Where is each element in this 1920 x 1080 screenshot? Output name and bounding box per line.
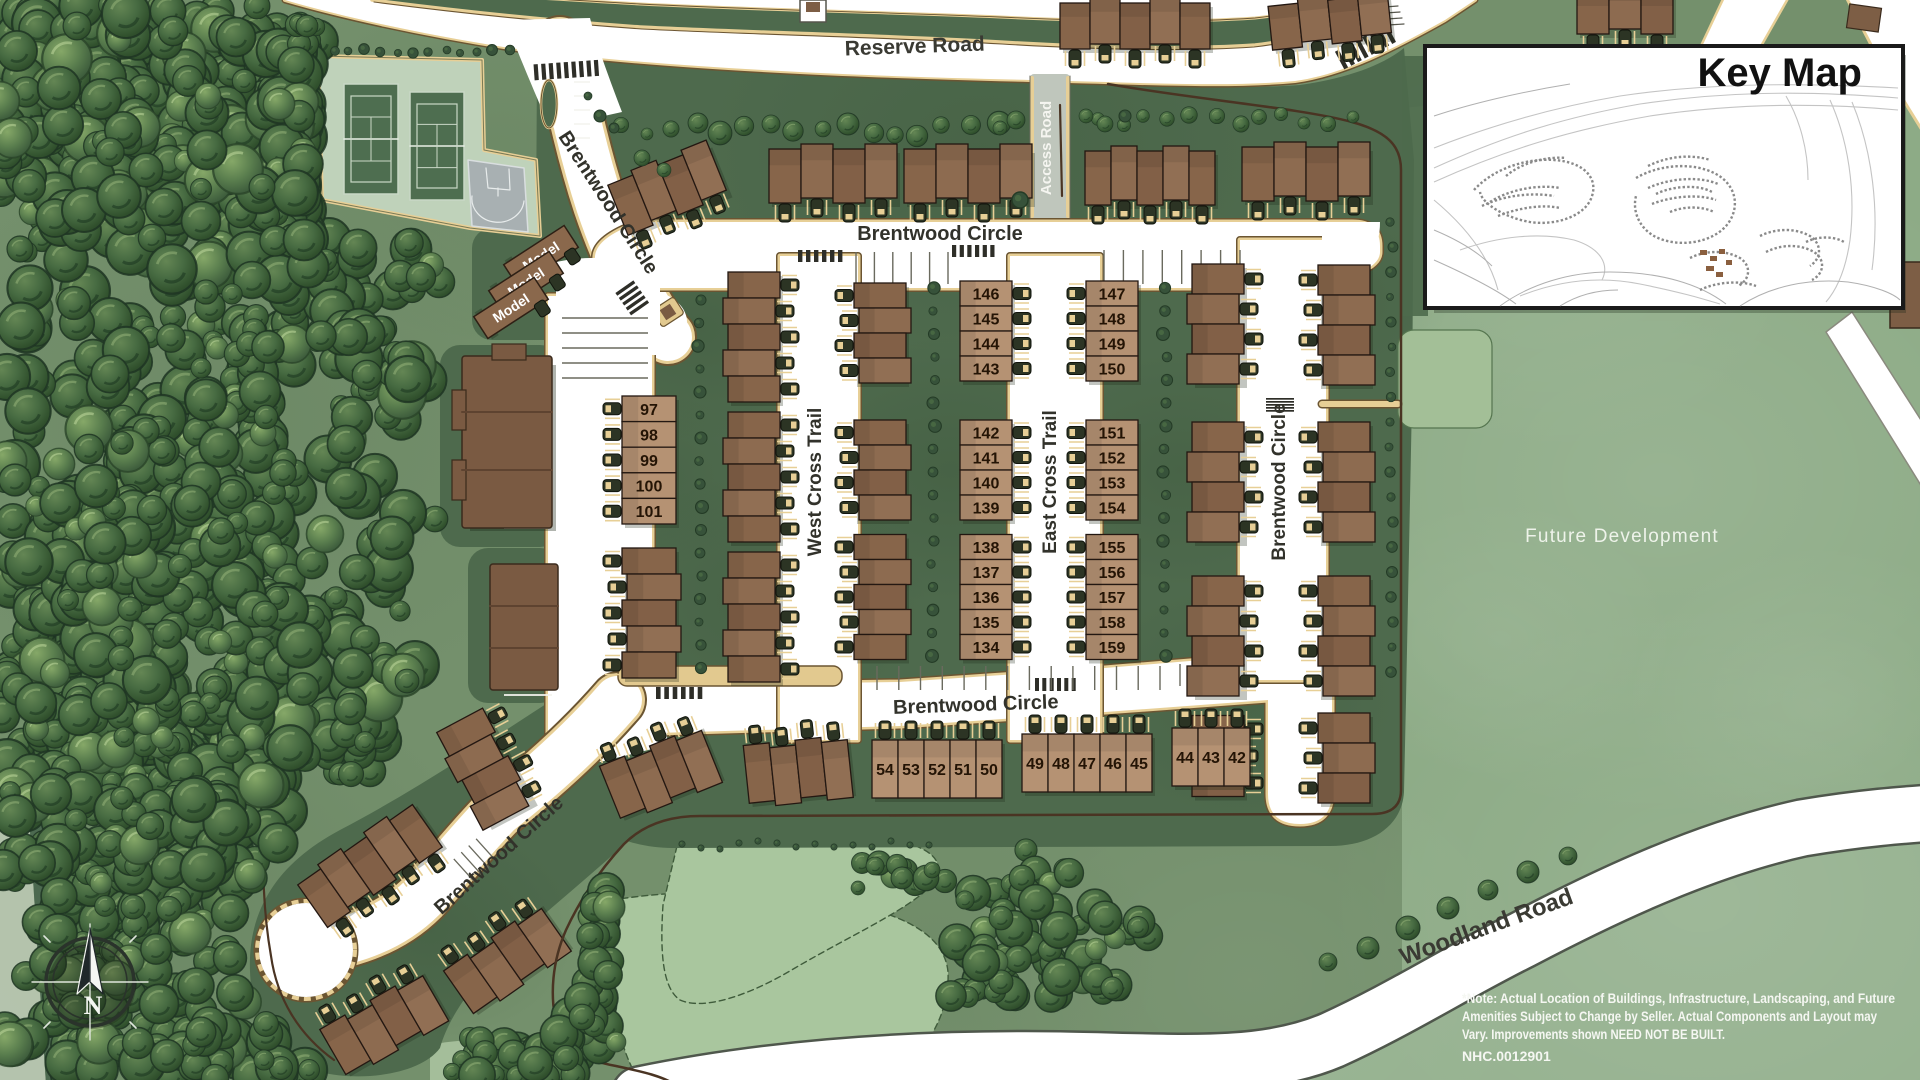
svg-text:N: N — [84, 991, 103, 1020]
svg-text:Brentwood Circle: Brentwood Circle — [857, 223, 1023, 245]
svg-text:140: 140 — [973, 476, 1000, 493]
svg-text:145: 145 — [973, 312, 1000, 329]
svg-text:*Note: Actual Location of Buil: *Note: Actual Location of Buildings, Inf… — [1462, 990, 1895, 1006]
svg-text:West Cross Trail: West Cross Trail — [805, 408, 826, 557]
svg-text:136: 136 — [973, 590, 1000, 607]
svg-text:137: 137 — [973, 565, 1000, 582]
svg-text:46: 46 — [1104, 756, 1122, 773]
svg-text:47: 47 — [1078, 756, 1096, 773]
svg-text:Future Development: Future Development — [1525, 526, 1719, 547]
svg-text:Access Road: Access Road — [1038, 101, 1055, 195]
svg-text:101: 101 — [636, 504, 663, 521]
svg-text:153: 153 — [1099, 476, 1126, 493]
svg-text:144: 144 — [973, 337, 1000, 354]
svg-text:156: 156 — [1099, 565, 1126, 582]
svg-text:143: 143 — [973, 362, 1000, 379]
svg-text:149: 149 — [1099, 337, 1126, 354]
svg-text:51: 51 — [954, 762, 972, 779]
svg-text:Vary. Improvements shown NEED: Vary. Improvements shown NEED NOT BE BUI… — [1462, 1026, 1725, 1042]
svg-text:44: 44 — [1176, 750, 1194, 767]
svg-text:48: 48 — [1052, 756, 1070, 773]
svg-text:148: 148 — [1099, 312, 1126, 329]
svg-text:50: 50 — [980, 762, 998, 779]
svg-text:146: 146 — [973, 287, 1000, 304]
svg-text:52: 52 — [928, 762, 946, 779]
svg-text:134: 134 — [973, 640, 1000, 657]
svg-text:42: 42 — [1228, 750, 1246, 767]
svg-text:157: 157 — [1099, 590, 1126, 607]
svg-text:151: 151 — [1099, 426, 1126, 443]
svg-text:NHC.0012901: NHC.0012901 — [1462, 1048, 1551, 1064]
svg-text:135: 135 — [973, 615, 1000, 632]
svg-text:158: 158 — [1099, 615, 1126, 632]
svg-text:49: 49 — [1026, 756, 1044, 773]
svg-text:99: 99 — [640, 453, 658, 470]
svg-text:East Cross Trail: East Cross Trail — [1040, 410, 1061, 554]
svg-text:141: 141 — [973, 451, 1000, 468]
svg-text:45: 45 — [1130, 756, 1148, 773]
svg-text:155: 155 — [1099, 540, 1126, 557]
svg-text:Brentwood Circle: Brentwood Circle — [1269, 403, 1290, 560]
svg-text:97: 97 — [640, 402, 658, 419]
svg-text:142: 142 — [973, 426, 1000, 443]
svg-text:Reserve Road: Reserve Road — [844, 33, 985, 61]
svg-text:154: 154 — [1099, 501, 1126, 518]
svg-text:54: 54 — [876, 762, 894, 779]
svg-text:100: 100 — [636, 479, 663, 496]
svg-text:53: 53 — [902, 762, 920, 779]
svg-text:Amenities Subject to Change by: Amenities Subject to Change by Seller. A… — [1462, 1008, 1877, 1024]
svg-text:150: 150 — [1099, 362, 1126, 379]
svg-text:159: 159 — [1099, 640, 1126, 657]
svg-text:Key Map: Key Map — [1698, 51, 1863, 95]
svg-text:147: 147 — [1099, 287, 1126, 304]
svg-text:43: 43 — [1202, 750, 1220, 767]
svg-text:139: 139 — [973, 501, 1000, 518]
svg-text:138: 138 — [973, 540, 1000, 557]
svg-text:98: 98 — [640, 427, 658, 444]
svg-text:152: 152 — [1099, 451, 1126, 468]
